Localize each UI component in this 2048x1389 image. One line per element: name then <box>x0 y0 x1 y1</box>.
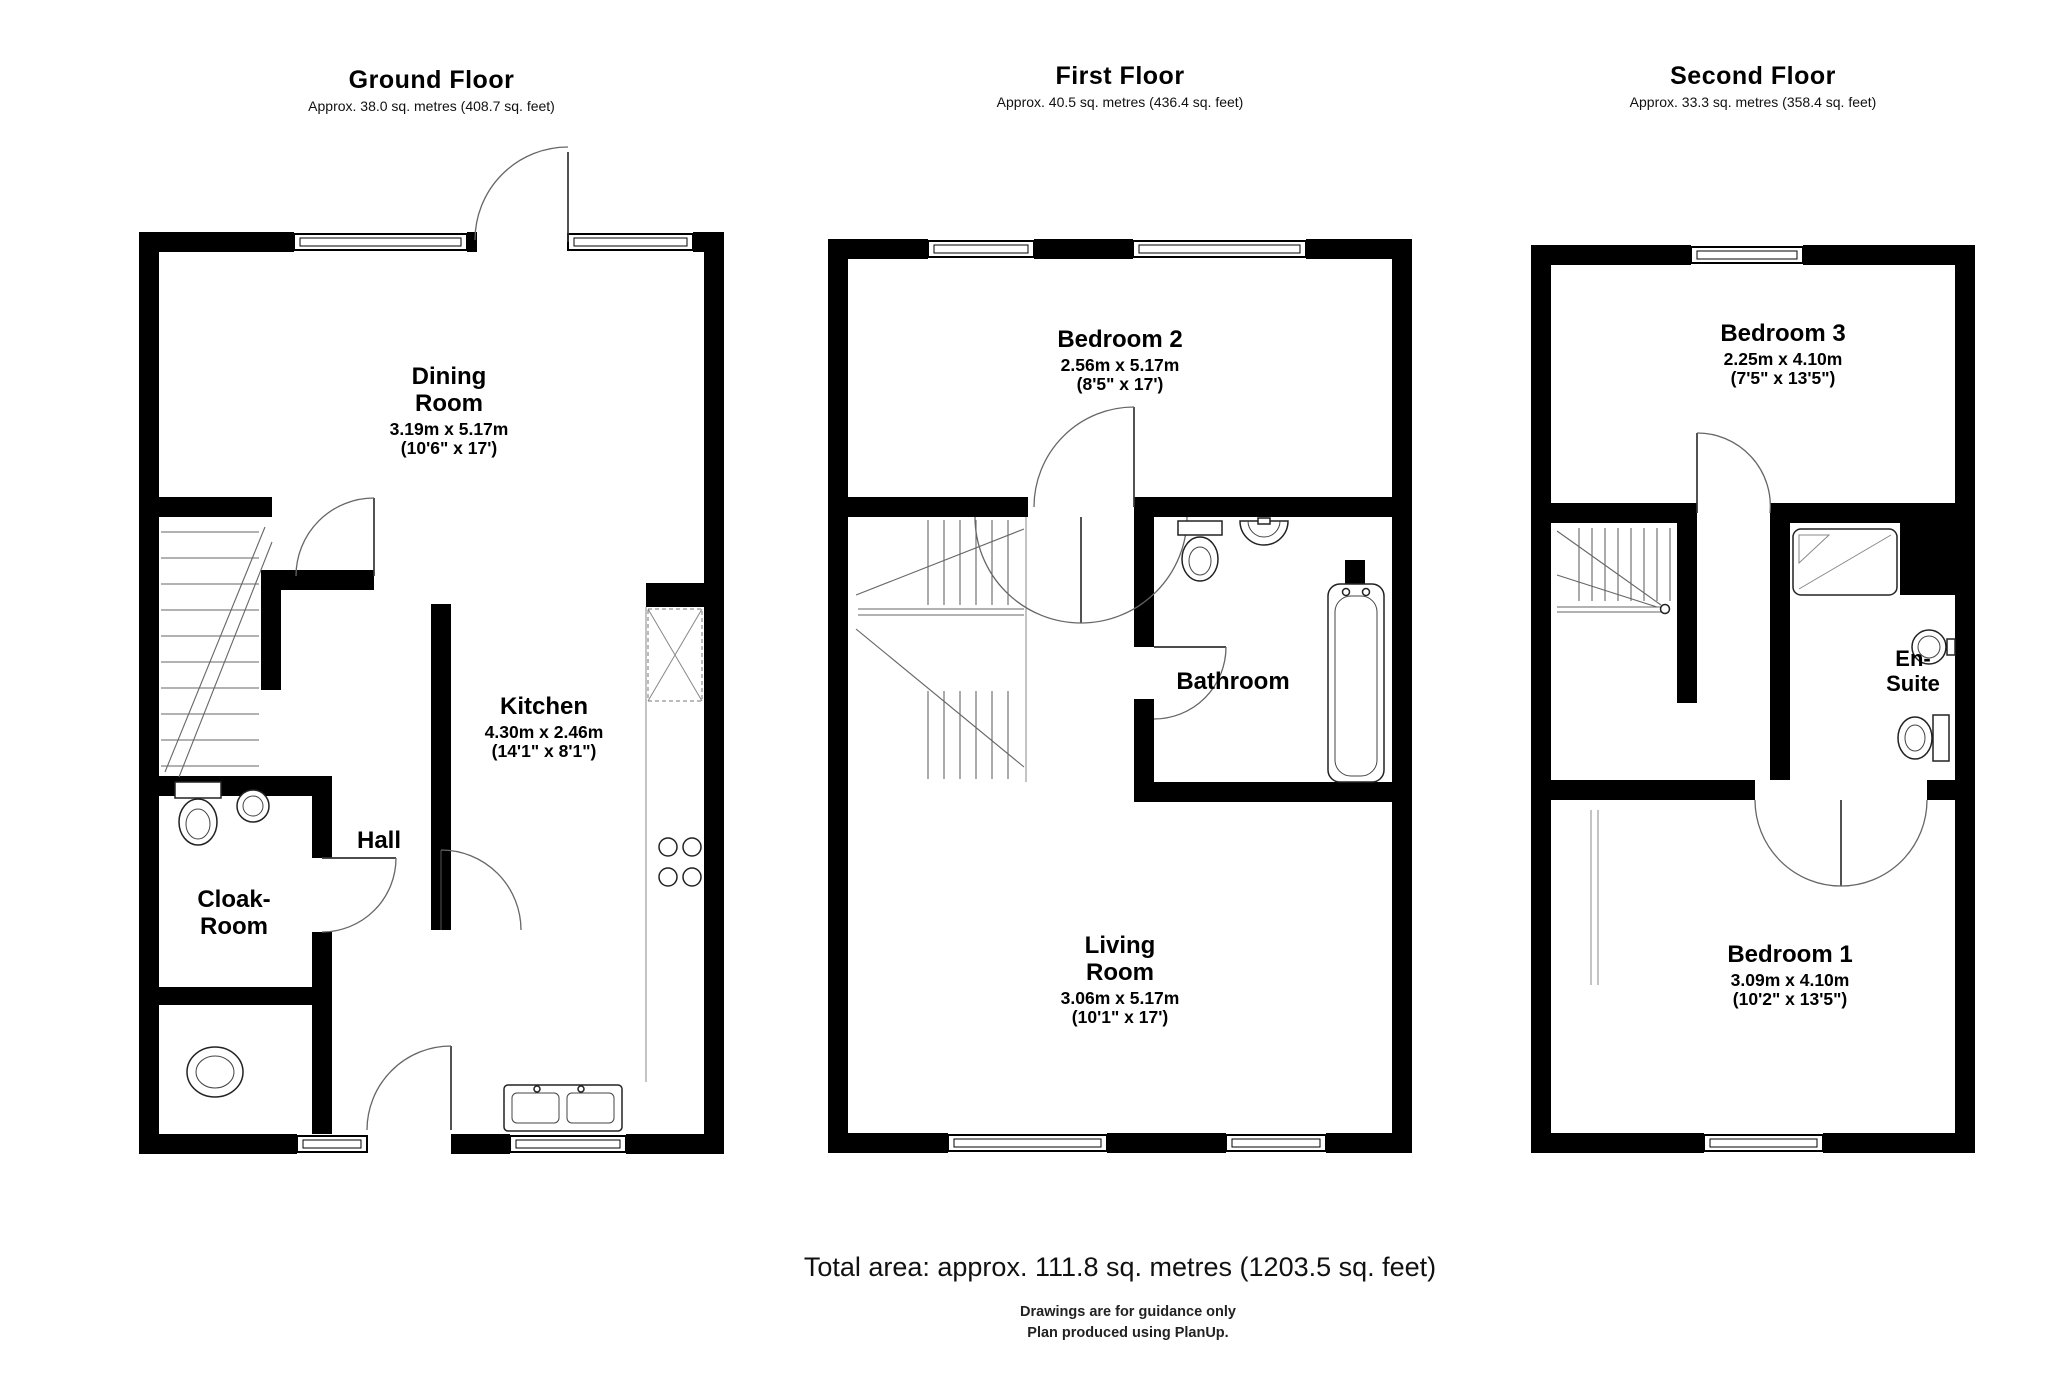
first-stairs-icon <box>856 517 1026 782</box>
first-floor-plan: Bedroom 2 2.56m x 5.17m (8'5" x 17') Bat… <box>828 239 1412 1153</box>
room-label-bedroom2: Bedroom 2 2.56m x 5.17m (8'5" x 17') <box>1005 327 1235 395</box>
ground-floor-title: Ground Floor <box>139 66 724 95</box>
room-label-bedroom3: Bedroom 3 2.25m x 4.10m (7'5" x 13'5") <box>1668 321 1898 389</box>
toilet-icon <box>175 782 221 845</box>
room-label-dining: Dining Room 3.19m x 5.17m (10'6" x 17') <box>334 364 564 459</box>
room-label-bedroom1: Bedroom 1 3.09m x 4.10m (10'2" x 13'5") <box>1675 942 1905 1010</box>
wc-pan-icon <box>187 1047 243 1097</box>
hob-icon <box>659 838 701 886</box>
second-floor-header: Second Floor Approx. 33.3 sq. metres (35… <box>1531 62 1975 110</box>
total-area-note: Total area: approx. 111.8 sq. metres (12… <box>620 1252 1620 1283</box>
room-label-bathroom: Bathroom <box>1153 669 1313 698</box>
second-floor-title: Second Floor <box>1531 62 1975 91</box>
room-label-cloakroom: Cloak-Room <box>169 887 299 943</box>
room-label-ensuite: En-Suite <box>1868 647 1958 698</box>
first-floor-title: First Floor <box>828 62 1412 91</box>
room-label-living: Living Room 3.06m x 5.17m (10'1" x 17') <box>1005 933 1235 1028</box>
room-label-kitchen: Kitchen 4.30m x 2.46m (14'1" x 8'1") <box>429 694 659 762</box>
total-area-text: Total area: approx. 111.8 sq. metres (12… <box>620 1252 1620 1283</box>
bathroom-toilet-icon <box>1178 521 1222 581</box>
second-stairs-icon <box>1557 528 1670 985</box>
ground-floor-area: Approx. 38.0 sq. metres (408.7 sq. feet) <box>139 98 724 114</box>
second-floor-area: Approx. 33.3 sq. metres (358.4 sq. feet) <box>1531 94 1975 110</box>
first-floor-area: Approx. 40.5 sq. metres (436.4 sq. feet) <box>828 94 1412 110</box>
bathroom-basin-icon <box>1240 518 1288 545</box>
disclaimer: Drawings are for guidance only Plan prod… <box>728 1302 1528 1344</box>
ensuite-toilet-icon <box>1898 715 1949 761</box>
disclaimer-line1: Drawings are for guidance only <box>728 1302 1528 1323</box>
floorplan-page: Ground Floor Approx. 38.0 sq. metres (40… <box>0 0 2048 1389</box>
basin-icon <box>237 790 269 822</box>
ground-floor-plan: Dining Room 3.19m x 5.17m (10'6" x 17') … <box>139 232 724 1154</box>
shower-icon <box>1793 529 1897 595</box>
first-floor-header: First Floor Approx. 40.5 sq. metres (436… <box>828 62 1412 110</box>
room-label-hall: Hall <box>319 828 439 857</box>
second-floor-plan: Bedroom 3 2.25m x 4.10m (7'5" x 13'5") E… <box>1531 245 1975 1153</box>
disclaimer-line2: Plan produced using PlanUp. <box>728 1323 1528 1344</box>
bath-icon <box>1328 584 1384 782</box>
ground-stairs-icon <box>161 527 272 777</box>
sink-icon <box>504 1085 622 1131</box>
ground-floor-header: Ground Floor Approx. 38.0 sq. metres (40… <box>139 66 724 114</box>
